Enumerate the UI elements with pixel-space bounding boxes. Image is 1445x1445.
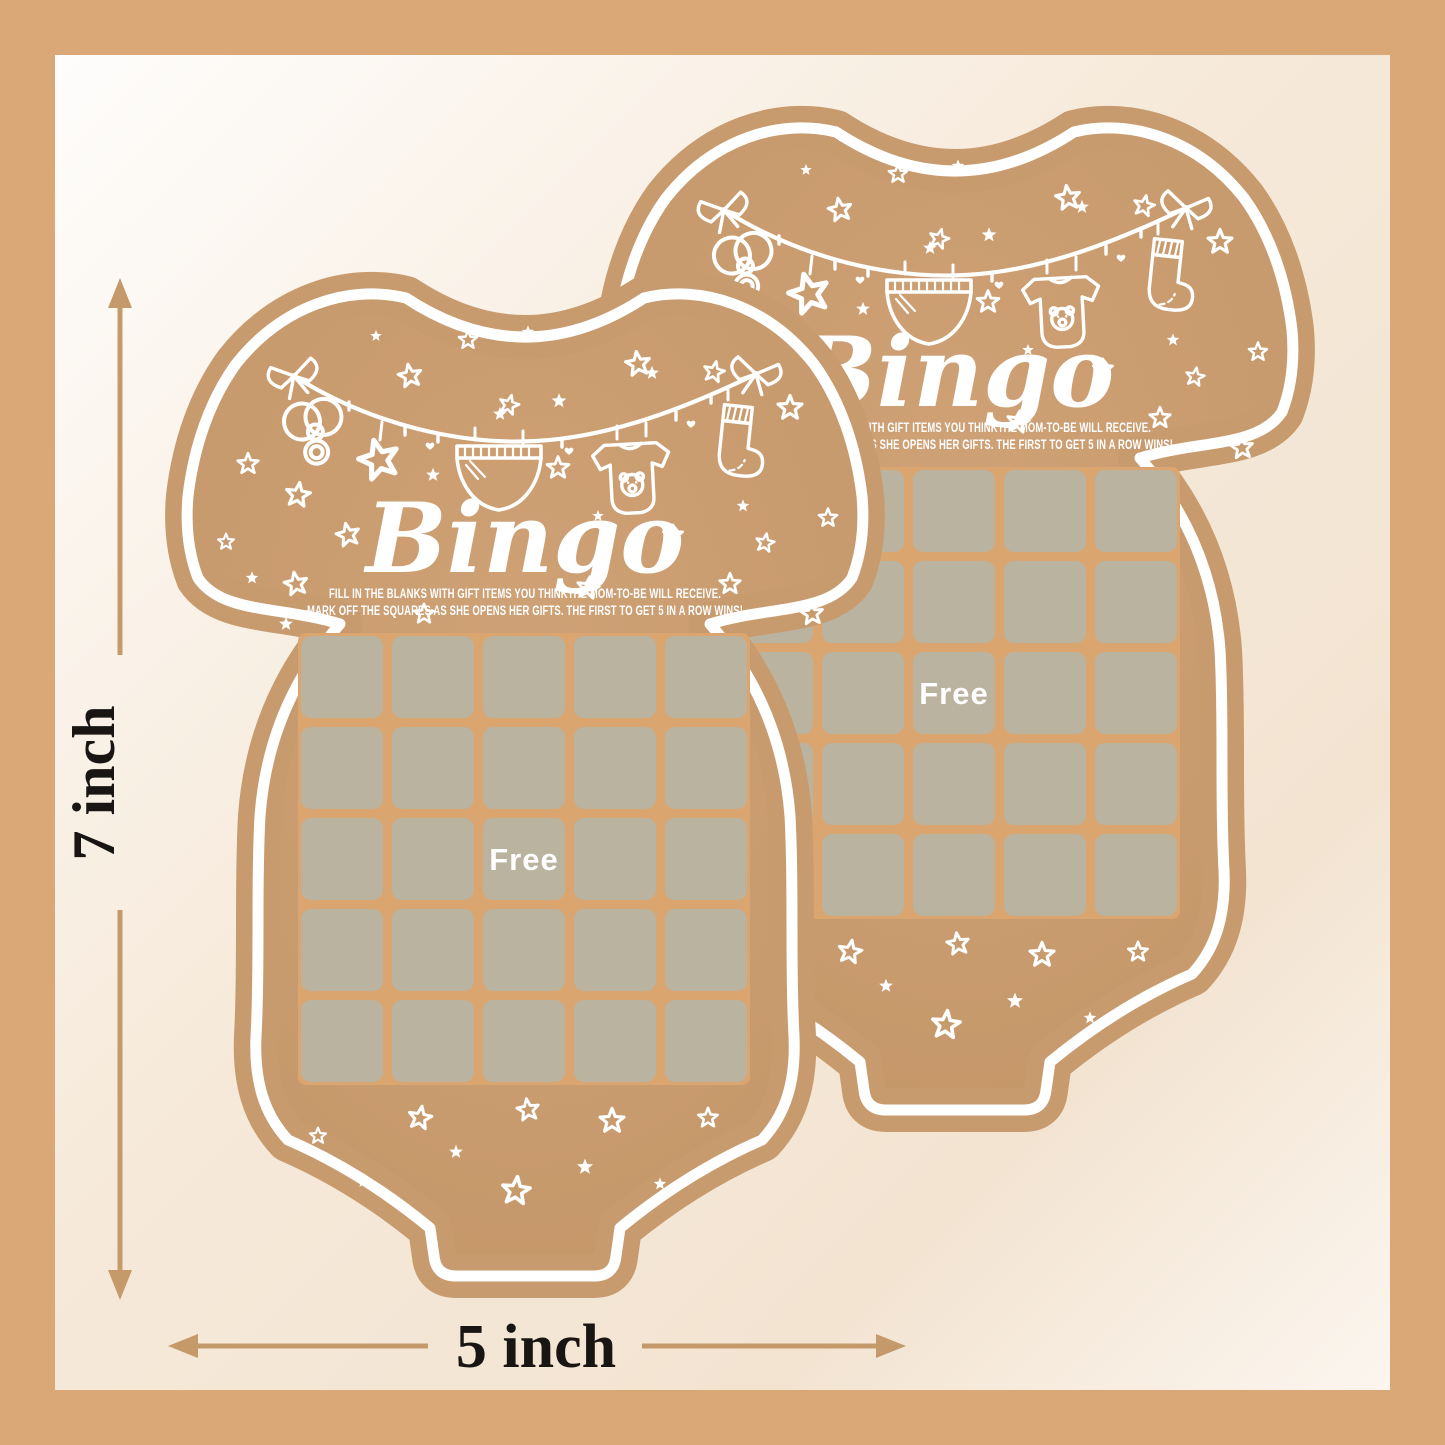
product-image: Free [0, 0, 1445, 1445]
width-dimension-label: 5 inch [456, 1313, 616, 1381]
bingo-card-front [187, 294, 863, 1276]
height-dimension-label: 7 inch [61, 705, 127, 860]
scene-svg: Free [0, 0, 1445, 1445]
